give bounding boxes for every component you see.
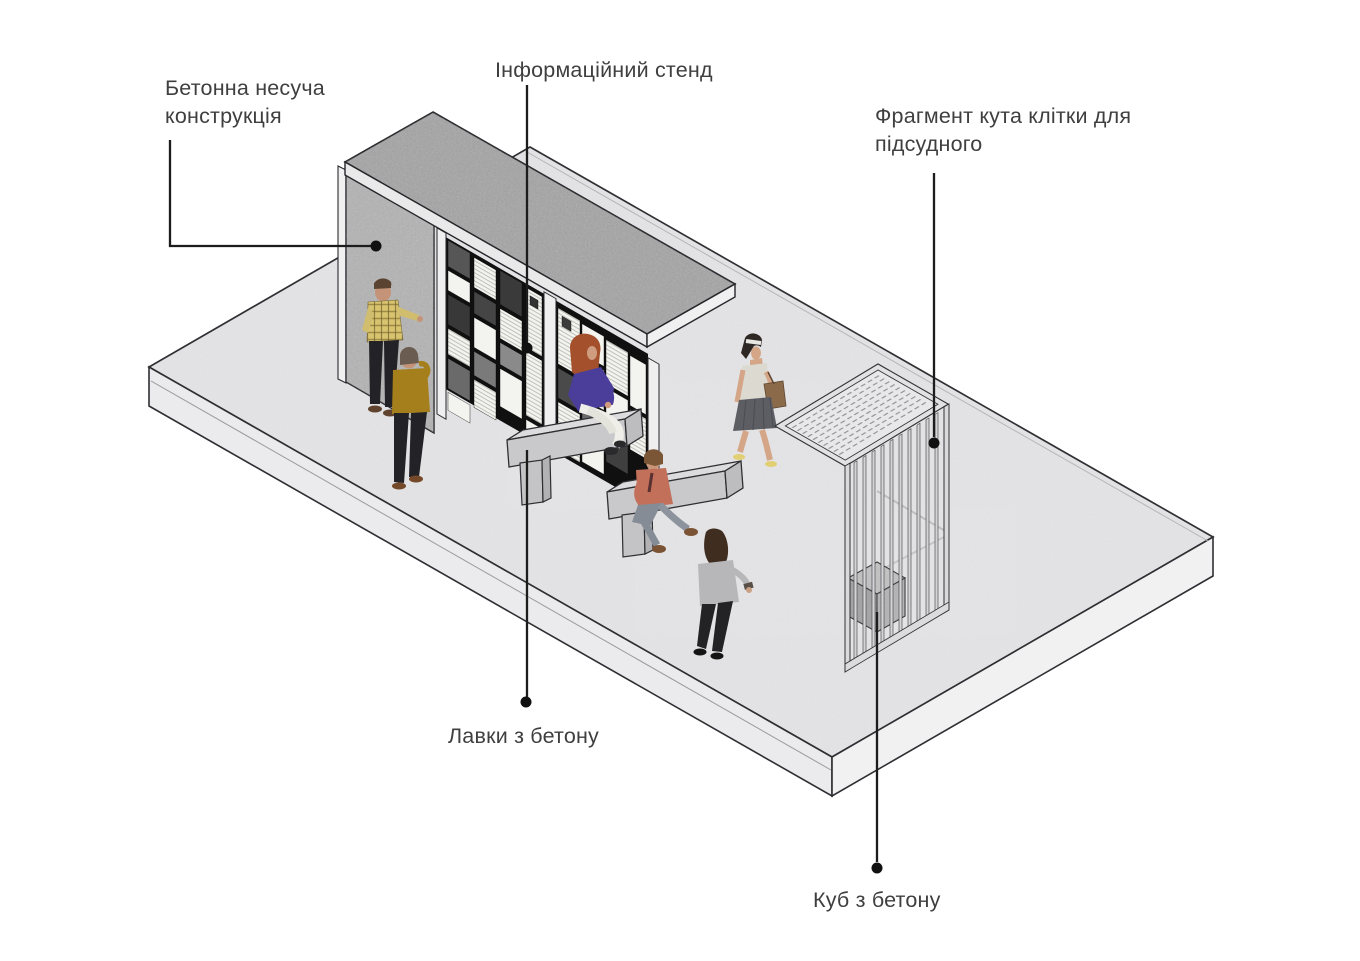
label-info-stand-text: Інформаційний стенд <box>495 56 713 84</box>
leader-dot-benches <box>521 697 532 708</box>
label-info-stand: Інформаційний стенд <box>495 56 713 84</box>
stand-post-left <box>437 228 446 419</box>
label-concrete-structure-line1: Бетонна несуча <box>165 74 325 102</box>
label-cage-fragment-line2: підсудного <box>875 130 1131 158</box>
leader-dot-cube <box>872 863 883 874</box>
leader-dot-cage-fragment <box>929 438 940 449</box>
label-concrete-structure: Бетонна несуча конструкція <box>165 74 325 130</box>
wall-edge-strip <box>338 166 346 383</box>
label-cage-fragment-line1: Фрагмент кута клітки для <box>875 102 1131 130</box>
label-benches: Лавки з бетону <box>448 722 599 750</box>
leader-dot-info-stand <box>522 343 533 354</box>
label-cube-text: Куб з бетону <box>813 886 941 914</box>
concrete-platform <box>140 100 1230 800</box>
isometric-scene <box>0 0 1360 961</box>
bench-1-pedestal <box>520 460 543 505</box>
stand-post-middle <box>544 292 556 441</box>
label-concrete-structure-line2: конструкція <box>165 102 325 130</box>
leader-dot-concrete-structure <box>371 241 382 252</box>
label-cube: Куб з бетону <box>813 886 941 914</box>
label-cage-fragment: Фрагмент кута клітки для підсудного <box>875 102 1131 158</box>
architectural-diagram: Бетонна несуча конструкція Інформаційний… <box>0 0 1360 961</box>
label-benches-text: Лавки з бетону <box>448 722 599 750</box>
